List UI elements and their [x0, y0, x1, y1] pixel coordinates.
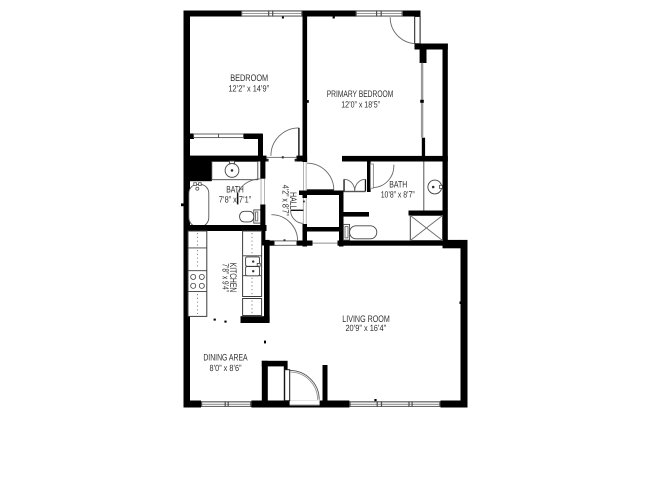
- svg-text:7’8” x 7’1”: 7’8” x 7’1”: [219, 195, 251, 205]
- svg-text:DINING AREA: DINING AREA: [203, 353, 248, 364]
- svg-text:7’8” x 9’4”: 7’8” x 9’4”: [220, 263, 230, 292]
- svg-text:10’8” x 8’7”: 10’8” x 8’7”: [381, 189, 415, 199]
- svg-text:8’0” x 8’6”: 8’0” x 8’6”: [210, 363, 242, 373]
- svg-text:4’2” x 8’7”: 4’2” x 8’7”: [280, 185, 290, 216]
- svg-text:12’0” x 18’5”: 12’0” x 18’5”: [341, 99, 380, 109]
- svg-text:20’9” x 16’4”: 20’9” x 16’4”: [345, 323, 386, 333]
- svg-text:12’2” x 14’9”: 12’2” x 14’9”: [228, 84, 269, 94]
